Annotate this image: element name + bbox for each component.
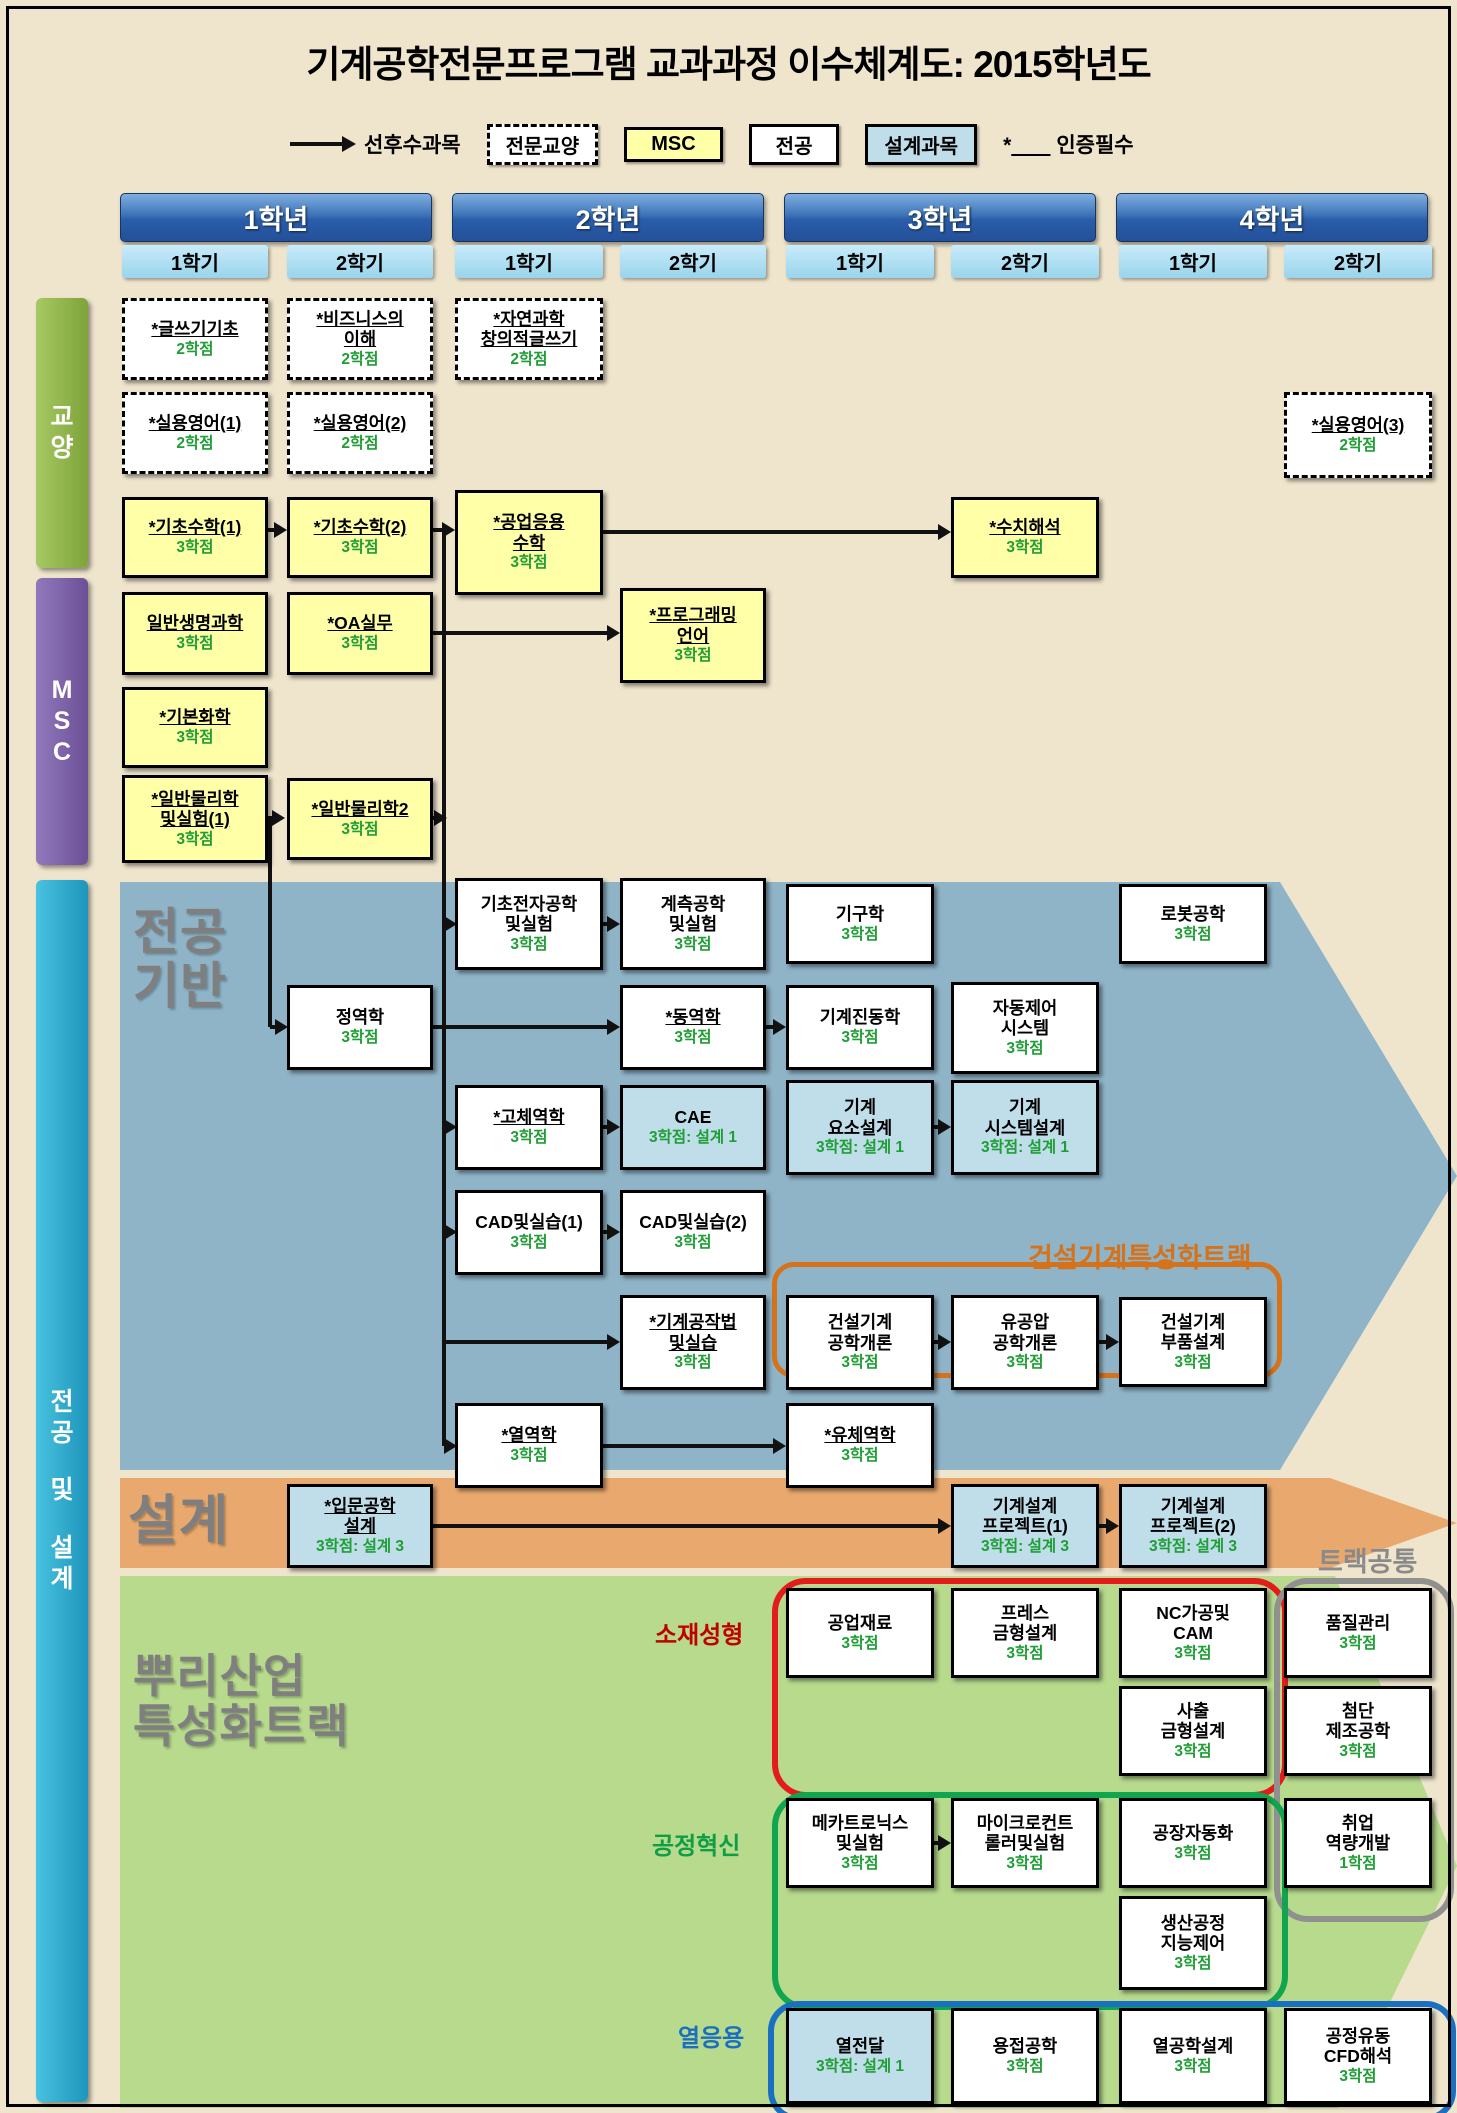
year-header-3: 3학년 — [784, 193, 1096, 242]
year-header-2: 2학년 — [452, 193, 764, 242]
course-box-46: 마이크로컨트롤러및실험3학점 — [951, 1798, 1099, 1888]
course-box-10: 일반생명과학3학점 — [122, 592, 268, 675]
course-box-14: *일반물리학및실험(1)3학점 — [122, 775, 268, 863]
connector-arrowhead-12 — [607, 916, 620, 932]
connector-line-21 — [433, 1524, 942, 1528]
course-box-9: *수치해석3학점 — [951, 497, 1099, 578]
course-box-36: *입문공학설계3학점: 설계 3 — [287, 1484, 433, 1568]
year-header-4: 4학년 — [1116, 193, 1428, 242]
course-box-48: 취업역량개발1학점 — [1284, 1798, 1432, 1888]
course-box-43: 사출금형설계3학점 — [1119, 1686, 1267, 1776]
legend-msc-chip: MSC — [624, 127, 722, 162]
legend: 선후수과목 전문교양 MSC 전공 설계과목 * 인증필수 — [290, 124, 1134, 164]
connector-arrowhead-5 — [434, 810, 447, 826]
course-box-53: 공정유동CFD해석3학점 — [1284, 2008, 1432, 2104]
connector-arrowhead-13 — [607, 1019, 620, 1035]
track-label-track-common: 트랙공통 — [1318, 1540, 1417, 1579]
course-box-16: 기초전자공학및실험3학점 — [455, 878, 603, 970]
course-box-1: *비즈니스의이해2학점 — [287, 298, 433, 380]
section-label-root-track: 뿌리산업특성화트랙 — [133, 1652, 350, 1751]
semester-header-1-1: 1학기 — [122, 245, 268, 278]
course-box-31: 건설기계공학개론3학점 — [786, 1295, 934, 1390]
course-box-52: 열공학설계3학점 — [1119, 2008, 1267, 2104]
prereq-arrow-icon — [290, 136, 356, 152]
connector-line-20 — [601, 1444, 777, 1448]
connector-arrowhead-21 — [938, 1518, 951, 1534]
course-box-35: *유체역학3학점 — [786, 1403, 934, 1488]
section-label-major-base: 전공기반 — [133, 905, 227, 1013]
connector-line-2 — [601, 530, 942, 534]
course-box-41: NC가공및CAM3학점 — [1119, 1588, 1267, 1678]
course-box-19: 로봇공학3학점 — [1119, 884, 1267, 964]
course-box-32: 유공압공학개론3학점 — [951, 1295, 1099, 1390]
course-box-49: 생산공정지능제어3학점 — [1119, 1896, 1267, 1990]
course-box-45: 메카트로닉스및실험3학점 — [786, 1798, 934, 1888]
course-box-8: *공업응용수학3학점 — [455, 490, 603, 595]
legend-prereq-label: 선후수과목 — [364, 129, 461, 159]
connector-arrowhead-1 — [442, 522, 455, 538]
course-box-20: 정역학3학점 — [287, 985, 433, 1070]
course-box-47: 공장자동화3학점 — [1119, 1798, 1267, 1888]
track-label-thermal-application: 열응용 — [678, 2018, 744, 2053]
semester-header-3-2: 2학기 — [951, 245, 1099, 278]
course-box-30: *기계공작법및실습3학점 — [620, 1295, 766, 1390]
connector-arrowhead-14 — [773, 1019, 786, 1035]
course-box-12: *프로그래밍언어3학점 — [620, 588, 766, 683]
connector-vline-1 — [268, 818, 272, 1027]
course-box-6: *기초수학(1)3학점 — [122, 497, 268, 578]
course-box-13: *기본화학3학점 — [122, 687, 268, 768]
semester-header-3-1: 1학기 — [786, 245, 934, 278]
course-box-25: CAE3학점: 설계 1 — [620, 1085, 766, 1170]
course-box-18: 기구학3학점 — [786, 884, 934, 964]
year-header-1: 1학년 — [120, 193, 432, 242]
course-box-37: 기계설계프로젝트(1)3학점: 설계 3 — [951, 1484, 1099, 1568]
section-label-design: 설계 — [128, 1492, 229, 1550]
connector-arrowhead-4 — [272, 810, 285, 826]
sidebar-liberal-arts: 교양 — [36, 298, 88, 568]
course-box-28: CAD및실습(1)3학점 — [455, 1190, 603, 1275]
course-box-7: *기초수학(2)3학점 — [287, 497, 433, 578]
course-box-21: *동역학3학점 — [620, 985, 766, 1070]
page-title: 기계공학전문프로그램 교과과정 이수체계도: 2015학년도 — [0, 34, 1457, 88]
semester-header-2-2: 2학기 — [620, 245, 766, 278]
course-box-44: 첨단제조공학3학점 — [1284, 1686, 1432, 1776]
course-box-34: *열역학3학점 — [455, 1403, 603, 1488]
course-box-51: 용접공학3학점 — [951, 2008, 1099, 2104]
course-box-29: CAD및실습(2)3학점 — [620, 1190, 766, 1275]
course-box-5: *실용영어(3)2학점 — [1284, 392, 1432, 478]
course-box-50: 열전달3학점: 설계 1 — [786, 2008, 934, 2104]
course-box-27: 기계시스템설계3학점: 설계 1 — [951, 1080, 1099, 1175]
sidebar-major-and-design: 전공및설계 — [36, 880, 88, 2102]
connector-arrowhead-22 — [1106, 1518, 1119, 1534]
sidebar-msc: MSC — [36, 578, 88, 865]
course-box-22: 기계진동학3학점 — [786, 985, 934, 1070]
course-box-23: 자동제어시스템3학점 — [951, 982, 1099, 1074]
connector-arrowhead-16 — [938, 1119, 951, 1135]
track-label-material-forming: 소재성형 — [655, 1615, 743, 1650]
course-box-11: *OA실무3학점 — [287, 592, 433, 675]
semester-header-1-2: 2학기 — [287, 245, 433, 278]
connector-line-3 — [430, 631, 611, 635]
track-label-construction-track: 건설기계특성화트랙 — [1028, 1236, 1252, 1275]
connector-arrowhead-17 — [607, 1224, 620, 1240]
course-box-40: 프레스금형설계3학점 — [951, 1588, 1099, 1678]
legend-cert-label: * 인증필수 — [1003, 129, 1134, 159]
track-label-process-innovation: 공정혁신 — [652, 1826, 740, 1861]
course-box-39: 공업재료3학점 — [786, 1588, 934, 1678]
course-box-3: *실용영어(1)2학점 — [122, 392, 268, 474]
legend-liberal-chip: 전문교양 — [487, 124, 599, 165]
course-box-26: 기계요소설계3학점: 설계 1 — [786, 1080, 934, 1175]
connector-arrowhead-10 — [607, 1334, 620, 1350]
connector-arrowhead-0 — [274, 522, 287, 538]
course-box-4: *실용영어(2)2학점 — [287, 392, 433, 474]
course-box-42: 품질관리3학점 — [1284, 1588, 1432, 1678]
connector-vline-0 — [442, 532, 446, 1446]
semester-header-4-1: 1학기 — [1119, 245, 1267, 278]
connector-arrowhead-15 — [607, 1119, 620, 1135]
course-box-33: 건설기계부품설계3학점 — [1119, 1297, 1267, 1387]
course-box-24: *고체역학3학점 — [455, 1085, 603, 1170]
semester-header-4-2: 2학기 — [1284, 245, 1432, 278]
connector-line-10 — [444, 1340, 611, 1344]
course-box-2: *자연과학창의적글쓰기2학점 — [455, 298, 603, 380]
connector-arrowhead-3 — [607, 625, 620, 641]
course-box-38: 기계설계프로젝트(2)3학점: 설계 3 — [1119, 1484, 1267, 1568]
course-box-17: 계측공학및실험3학점 — [620, 878, 766, 970]
legend-major-chip: 전공 — [749, 124, 840, 165]
connector-arrowhead-2 — [938, 524, 951, 540]
legend-design-chip: 설계과목 — [865, 124, 977, 165]
semester-header-2-1: 1학기 — [455, 245, 603, 278]
connector-line-13 — [433, 1025, 611, 1029]
connector-arrowhead-20 — [773, 1438, 786, 1454]
curriculum-flowchart: 기계공학전문프로그램 교과과정 이수체계도: 2015학년도 선후수과목 전문교… — [0, 0, 1457, 2113]
course-box-0: *글쓰기기초2학점 — [122, 298, 268, 380]
course-box-15: *일반물리학23학점 — [287, 778, 433, 860]
